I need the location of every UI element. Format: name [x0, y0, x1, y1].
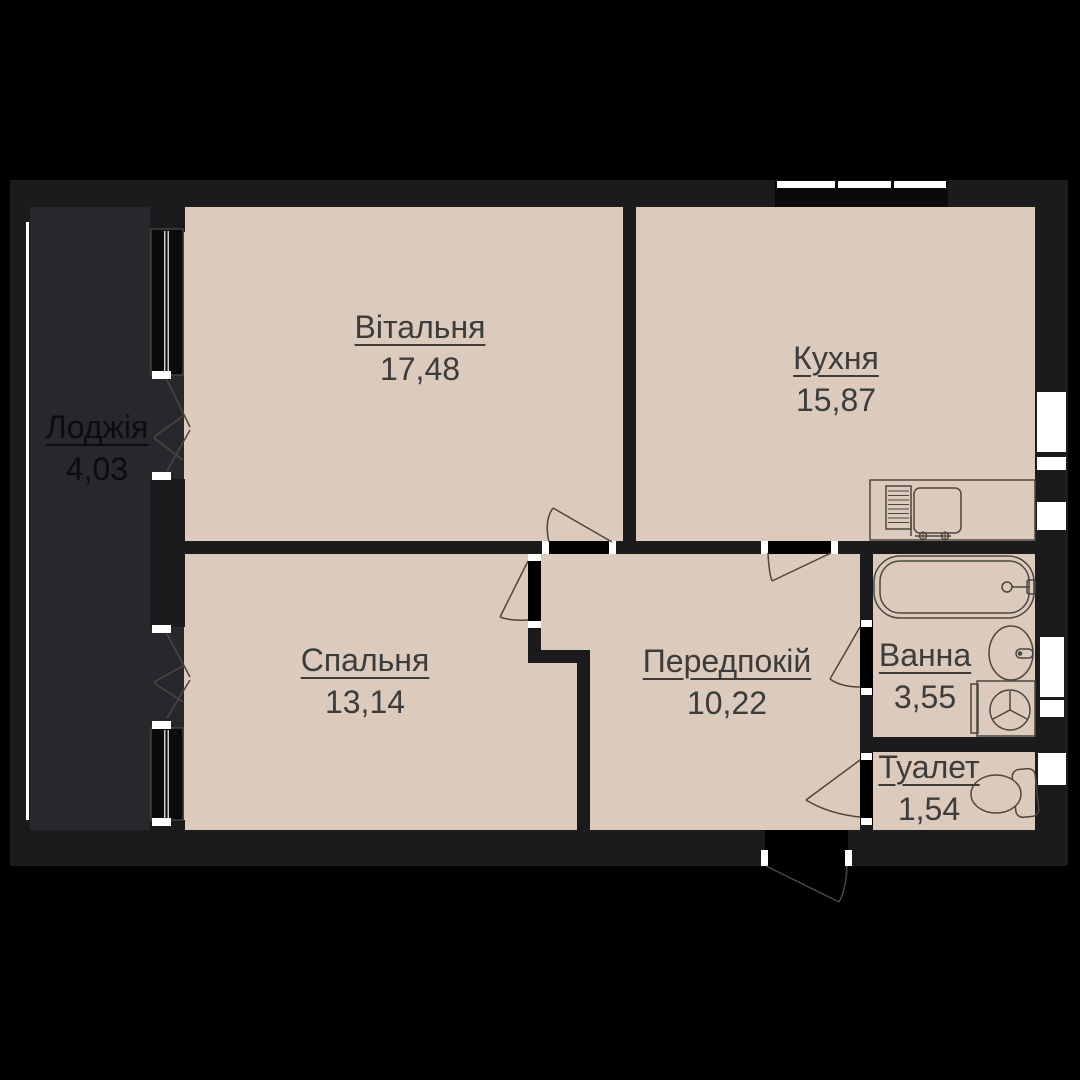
window-mullion: [891, 181, 894, 188]
jamb: [831, 541, 838, 554]
window-casement-line: [164, 231, 166, 373]
wall-horizontal-a: [170, 541, 542, 554]
wall-bedroom-step: [528, 650, 590, 663]
jamb: [542, 541, 549, 554]
room-area-bathroom: 3,55: [879, 675, 971, 719]
wall-horizontal-c: [838, 541, 1035, 554]
window-bathroom-right: [1040, 637, 1064, 697]
window-block: [151, 229, 183, 375]
window-casement-line: [168, 231, 170, 373]
window-casement-line: [168, 730, 170, 818]
jamb: [152, 472, 171, 480]
room-label-kitchen: Кухня 15,87: [793, 338, 879, 422]
window-kitchen-right: [1037, 392, 1066, 452]
window-toilet-right: [1038, 753, 1066, 785]
jamb: [861, 688, 872, 695]
room-area-toilet: 1,54: [878, 787, 979, 831]
wall-bottom-left: [10, 830, 765, 866]
jamb: [152, 371, 171, 379]
jamb: [528, 621, 541, 628]
room-name-bedroom: Спальня: [301, 640, 430, 680]
room-name-toilet: Туалет: [878, 747, 979, 787]
room-name-bathroom: Ванна: [879, 635, 971, 675]
door-swing-icon-entry: [766, 866, 839, 902]
floor-plan-svg: [0, 0, 1080, 1080]
jamb: [861, 818, 872, 825]
room-label-toilet: Туалет 1,54: [878, 747, 979, 831]
window-bathroom-right-small: [1040, 700, 1064, 717]
wall-bedroom-hall-low: [577, 663, 590, 830]
window-bedroom-left: [151, 728, 183, 820]
room-area-kitchen: 15,87: [793, 378, 879, 422]
wall-hall-toilet-stub: [860, 825, 873, 830]
jamb: [152, 818, 171, 826]
jamb: [609, 541, 616, 554]
room-name-loggia: Лоджія: [46, 407, 149, 447]
window-mullion: [835, 181, 838, 188]
jamb: [152, 721, 171, 729]
jamb: [152, 625, 171, 633]
floor-plan: Вітальня 17,48 Кухня 15,87 Лоджія 4,03 С…: [0, 0, 1080, 1080]
bedroom-floor-ext: [528, 663, 577, 830]
room-label-loggia: Лоджія 4,03: [46, 407, 149, 491]
room-label-bedroom: Спальня 13,14: [301, 640, 430, 724]
room-label-hallway: Передпокій 10,22: [643, 641, 811, 725]
loggia-glazing-icon: [26, 222, 29, 820]
room-name-living: Вітальня: [355, 307, 486, 347]
wall-loggia-stub-top: [150, 207, 185, 232]
window-casement-line: [164, 730, 166, 818]
window-kitchen-right-low: [1037, 502, 1066, 530]
wall-living-kitchen: [623, 207, 636, 541]
window-glass: [777, 181, 946, 188]
wall-hall-bath-a: [860, 554, 873, 620]
room-area-living: 17,48: [355, 347, 486, 391]
window-top-kitchen: [775, 180, 948, 207]
jamb: [845, 850, 852, 866]
room-name-kitchen: Кухня: [793, 338, 879, 378]
jamb: [861, 753, 872, 760]
room-label-bathroom: Ванна 3,55: [879, 635, 971, 719]
wall-bottom-right: [848, 830, 1068, 866]
room-area-loggia: 4,03: [46, 447, 149, 491]
room-area-bedroom: 13,14: [301, 680, 430, 724]
room-area-hallway: 10,22: [643, 681, 811, 725]
jamb: [761, 541, 768, 554]
door-arc-entry: [839, 866, 847, 902]
jamb: [761, 850, 768, 866]
window-kitchen-right-small: [1037, 457, 1066, 470]
room-label-living: Вітальня 17,48: [355, 307, 486, 391]
window-block: [151, 728, 183, 820]
room-name-hallway: Передпокій: [643, 641, 811, 681]
window-living-left: [151, 229, 183, 375]
jamb: [528, 554, 541, 561]
wall-horizontal-b: [616, 541, 761, 554]
jamb: [861, 620, 872, 627]
